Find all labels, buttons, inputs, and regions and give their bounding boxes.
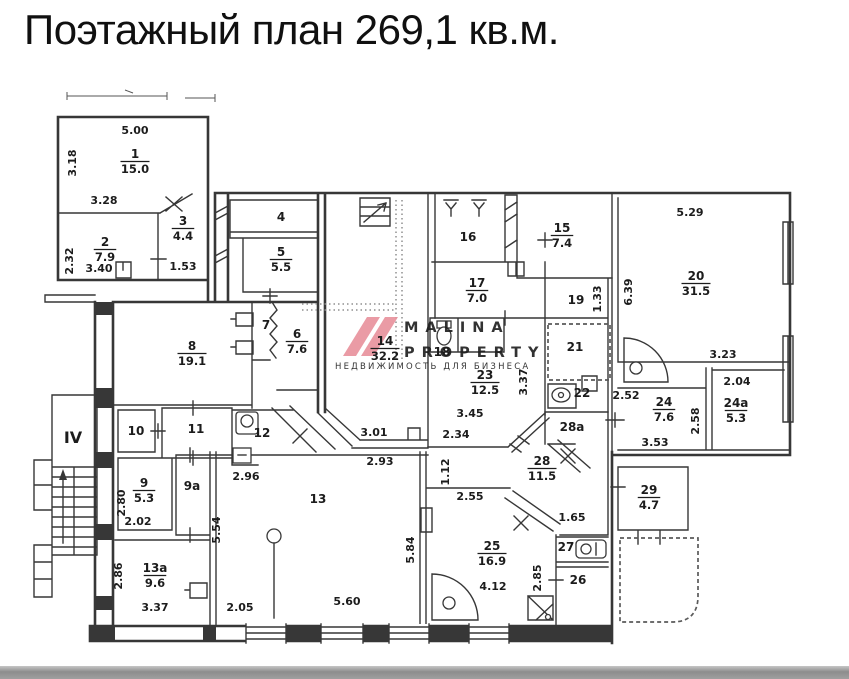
dim-label: 5.29: [676, 206, 703, 219]
dim-label: 2.85: [531, 564, 544, 591]
room-label: 29: [641, 483, 658, 497]
dim-label: 2.55: [456, 490, 483, 503]
dim-label: 3.40: [85, 262, 112, 275]
dim-label: 5.84: [404, 536, 417, 563]
room-label: 23: [477, 368, 494, 382]
dim-label: 2.52: [612, 389, 639, 402]
room-area-label: 5.3: [726, 411, 746, 425]
room-area-label: 32.2: [371, 349, 399, 363]
room-label: 12: [254, 426, 271, 440]
windows: [246, 222, 793, 643]
dim-label: 3.45: [456, 407, 483, 420]
room-label: 14: [377, 334, 394, 348]
dim-label: 3.53: [641, 436, 668, 449]
room-area-label: 11.5: [528, 469, 556, 483]
room-label: 24: [656, 395, 673, 409]
dim-label: 2.86: [112, 562, 125, 589]
room-area-label: 31.5: [682, 284, 710, 298]
dim-label: 3.23: [709, 348, 736, 361]
room-area-label: 5.3: [134, 491, 154, 505]
room-label: 1: [131, 147, 139, 161]
room-label: 27: [558, 540, 575, 554]
dim-label: 1.33: [591, 285, 604, 312]
balcony-outline: [620, 538, 698, 622]
room-label: IV: [64, 428, 83, 447]
room-label: 4: [277, 210, 285, 224]
room-label: 26: [570, 573, 587, 587]
dim-label: 2.93: [366, 455, 393, 468]
dim-label: 6.39: [622, 278, 635, 305]
dim-label: 4.12: [479, 580, 506, 593]
room-area-label: 4.4: [173, 229, 193, 243]
room-area-label: 9.6: [145, 576, 165, 590]
dim-label: 2.34: [442, 428, 469, 441]
room-label: 6: [293, 327, 301, 341]
room-label: 10: [128, 424, 145, 438]
toilet-icon: [576, 540, 606, 558]
dim-label: 2.04: [723, 375, 750, 388]
dim-label: 5.00: [121, 124, 148, 137]
urinal-icon: [472, 200, 486, 216]
dim-label: 1.65: [558, 511, 585, 524]
walls-inner: [58, 193, 790, 625]
shower-drain-icon: [546, 615, 551, 620]
dim-label: 5.54: [210, 516, 223, 543]
room-area-label: 5.5: [271, 260, 291, 274]
dim-label: 3.28: [90, 194, 117, 207]
urinal-icon: [444, 200, 458, 216]
column: [267, 529, 281, 618]
shower-drain-icon: [630, 362, 642, 374]
room-label: 22: [574, 386, 591, 400]
page-edge-shadow: [797, 80, 822, 665]
dim-label: 2.02: [124, 515, 151, 528]
room-label: 19: [568, 293, 585, 307]
room-label: 25: [484, 539, 501, 553]
room-area-label: 15.0: [121, 162, 149, 176]
shower-drain-icon: [443, 597, 455, 609]
room-label: 24а: [724, 396, 749, 410]
dim-label: 2.05: [226, 601, 253, 614]
dim-label: 2.80: [115, 489, 128, 516]
dim-label: 1.53: [169, 260, 196, 273]
room-area-label: 19.1: [178, 354, 206, 368]
dim-label: 2.58: [689, 407, 702, 434]
room-label: 8: [188, 339, 196, 353]
stair-direction-arrow: [59, 469, 67, 480]
dim-label: 3.37: [141, 601, 168, 614]
room-label: 11: [188, 422, 205, 436]
room-label: 13а: [143, 561, 168, 575]
room-label: 28а: [560, 420, 585, 434]
dim-label: 1.12: [439, 458, 452, 485]
room-area-label: 4.7: [639, 498, 659, 512]
room-area-label: 16.9: [478, 554, 506, 568]
sink-icon: [233, 448, 251, 463]
room-label: 2: [101, 235, 109, 249]
room-label: 15: [554, 221, 571, 235]
dim-label: 3.01: [360, 426, 387, 439]
dim-label: 5.60: [333, 595, 360, 608]
staircase: [34, 395, 97, 597]
room-label: 9а: [184, 479, 200, 493]
room-label: 16: [460, 230, 477, 244]
room-area-label: 7.6: [287, 342, 307, 356]
dim-label: 3.18: [66, 149, 79, 176]
room-label: 9: [140, 476, 148, 490]
room-area-label: 12.5: [471, 383, 499, 397]
dim-label: 3.37: [517, 368, 530, 395]
room-label: 13: [310, 492, 327, 506]
page-bottom-shadow: [0, 666, 849, 679]
room-label: 28: [534, 454, 551, 468]
room-label: 17: [469, 276, 486, 290]
room-area-label: 7.6: [654, 410, 674, 424]
room-area-label: 7.0: [467, 291, 487, 305]
dim-label: 2.96: [232, 470, 259, 483]
floor-plan: MALINA PROPERTY НЕДВИЖИМОСТЬ ДЛЯ БИЗНЕСА…: [0, 0, 849, 679]
room-label: 21: [567, 340, 584, 354]
room-label: 18: [434, 345, 451, 359]
watermark-line2: PROPERTY: [404, 345, 546, 361]
room-area-label: 7.4: [552, 236, 572, 250]
watermark-line3: НЕДВИЖИМОСТЬ ДЛЯ БИЗНЕСА: [335, 362, 530, 372]
watermark-line1: MALINA: [404, 320, 510, 336]
room-label: 5: [277, 245, 285, 259]
room-label: 3: [179, 214, 187, 228]
page: Поэтажный план 269,1 кв.м.: [0, 0, 849, 679]
sink-icon: [552, 388, 570, 402]
dimension-lines: [67, 90, 215, 102]
room-label: 7: [262, 318, 270, 332]
room-label: 20: [688, 269, 705, 283]
dim-label: 2.32: [63, 247, 76, 274]
